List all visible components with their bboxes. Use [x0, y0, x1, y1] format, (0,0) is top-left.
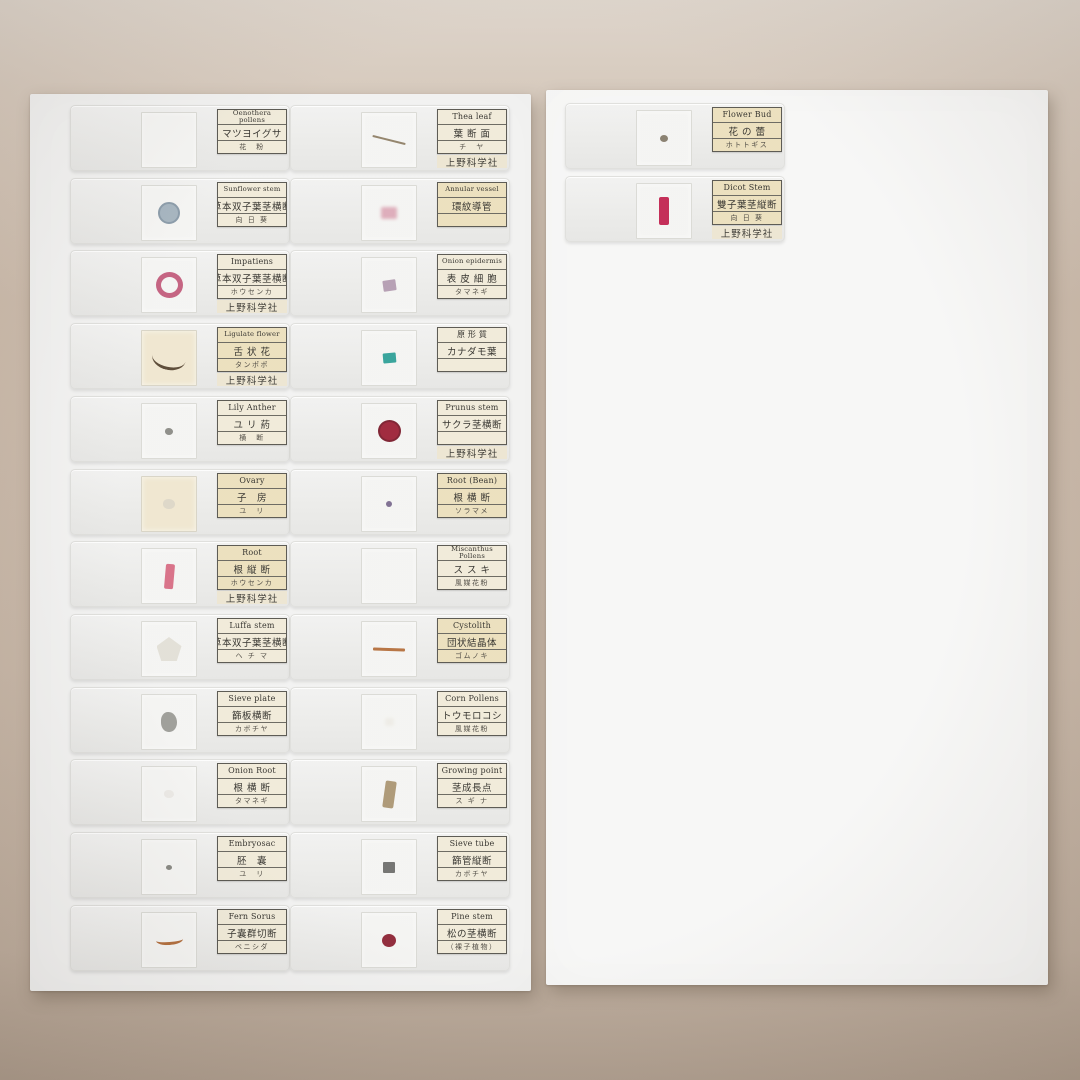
microscope-slide-sieve-plate: Sieve plate篩板横断カボチヤ	[70, 687, 290, 753]
label-japanese: 草本双子葉茎横断	[218, 634, 286, 650]
label-japanese: サクラ茎横断	[438, 416, 506, 432]
specimen-smudge	[381, 207, 397, 219]
label-title: Annular vessel	[438, 183, 506, 198]
microscope-slide-prunus-stem: Prunus stemサクラ茎横断上野科学社	[290, 396, 510, 462]
microscope-slide-ovary: Ovary子 房ユ リ	[70, 469, 290, 535]
label-japanese: 篩管縦断	[438, 852, 506, 868]
label-kana: 風媒花粉	[438, 723, 506, 735]
specimen-dot	[660, 135, 668, 142]
cover-glass	[141, 403, 197, 459]
label-japanese: カナダモ葉	[438, 343, 506, 359]
cover-glass	[141, 621, 197, 677]
cover-glass	[361, 766, 417, 822]
microscope-slide-oenothera-pollens: Oenothera pollensマツヨイグサ花 粉	[70, 105, 290, 171]
label-japanese: 篩板横断	[218, 707, 286, 723]
microscope-slide-flower-bud: Flower Bud花 の 蕾ホトトギス	[565, 103, 785, 169]
label-japanese: 葉 断 面	[438, 125, 506, 141]
slide-label: Luffa stem草本双子葉茎横断ヘ チ マ	[217, 618, 287, 663]
photo-scene: Oenothera pollensマツヨイグサ花 粉Sunflower stem…	[0, 0, 1080, 1080]
label-title: Root	[218, 546, 286, 561]
label-kana: カボチヤ	[218, 723, 286, 735]
label-kana: タマネギ	[438, 286, 506, 298]
label-title: Sieve tube	[438, 837, 506, 852]
maker-label: 上野科学社	[217, 300, 287, 313]
label-japanese: 松の茎横断	[438, 925, 506, 941]
label-title: Prunus stem	[438, 401, 506, 416]
label-japanese: 子嚢群切断	[218, 925, 286, 941]
maker-label: 上野科学社	[437, 155, 507, 168]
cover-glass	[141, 694, 197, 750]
label-japanese: 表 皮 細 胞	[438, 270, 506, 286]
label-title: Ligulate flower	[218, 328, 286, 343]
slide-label: Annular vessel環紋導管	[437, 182, 507, 227]
label-japanese: 草本双子葉茎横断	[218, 198, 286, 214]
label-title: Fern Sorus	[218, 910, 286, 925]
cover-glass	[141, 257, 197, 313]
specimen-blob	[165, 428, 173, 435]
slide-label: Dicot Stem雙子葉茎縦断向 日 葵	[712, 180, 782, 225]
microscope-slide-lily-anther: Lily Antherユ リ 葯横 断	[70, 396, 290, 462]
label-kana: カボチヤ	[438, 868, 506, 880]
specimen-blob	[164, 790, 174, 798]
slide-label: Onion Root根 横 断タマネギ	[217, 763, 287, 808]
label-kana: ヘ チ マ	[218, 650, 286, 662]
label-kana	[438, 214, 506, 226]
label-title: Ovary	[218, 474, 286, 489]
label-japanese: 胚 嚢	[218, 852, 286, 868]
slide-label: Sieve plate篩板横断カボチヤ	[217, 691, 287, 736]
label-japanese: 子 房	[218, 489, 286, 505]
cover-glass	[361, 694, 417, 750]
cover-glass	[361, 476, 417, 532]
slide-label: Ovary子 房ユ リ	[217, 473, 287, 518]
maker-label: 上野科学社	[217, 373, 287, 386]
label-kana: ホウセンカ	[218, 577, 286, 589]
label-kana: 風媒花粉	[438, 577, 506, 589]
specimen-blob	[163, 499, 175, 509]
slide-label: Oenothera pollensマツヨイグサ花 粉	[217, 109, 287, 154]
slide-label: Flower Bud花 の 蕾ホトトギス	[712, 107, 782, 152]
label-kana: ソラマメ	[438, 505, 506, 517]
label-japanese: ス ス キ	[438, 561, 506, 577]
microscope-slide-dicot-stem: Dicot Stem雙子葉茎縦断向 日 葵上野科学社	[565, 176, 785, 242]
label-kana: ホトトギス	[713, 139, 781, 151]
cover-glass	[361, 185, 417, 241]
label-japanese: 茎成長点	[438, 779, 506, 795]
specimen-bar	[659, 197, 669, 225]
specimen-line	[372, 135, 405, 145]
cover-glass	[361, 839, 417, 895]
maker-label: 上野科学社	[437, 446, 507, 459]
specimen-dot	[166, 865, 172, 870]
microscope-slide-onion-root: Onion Root根 横 断タマネギ	[70, 759, 290, 825]
slide-label: Root (Bean)根 横 断ソラマメ	[437, 473, 507, 518]
label-japanese: マツヨイグサ	[218, 125, 286, 141]
label-kana: タンポポ	[218, 359, 286, 371]
specimen-dot	[382, 934, 396, 947]
cover-glass	[141, 839, 197, 895]
cover-glass	[141, 912, 197, 968]
label-kana	[438, 359, 506, 371]
label-title: Cystolith	[438, 619, 506, 634]
label-title: Onion epidermis	[438, 255, 506, 270]
slide-tray-right: Flower Bud花 の 蕾ホトトギスDicot Stem雙子葉茎縦断向 日 …	[546, 90, 1048, 985]
label-japanese: 花 の 蕾	[713, 123, 781, 139]
specimen-bar	[382, 780, 397, 808]
label-kana: ゴムノキ	[438, 650, 506, 662]
label-title: Dicot Stem	[713, 181, 781, 196]
specimen-square	[383, 862, 395, 873]
cover-glass	[141, 330, 197, 386]
label-japanese: 根 縦 断	[218, 561, 286, 577]
slide-label: Miscanthus Pollensス ス キ風媒花粉	[437, 545, 507, 590]
cover-glass	[141, 548, 197, 604]
slide-label: Impatiens草本双子葉茎横断ホウセンカ	[217, 254, 287, 299]
specimen-circle	[158, 202, 180, 224]
slide-label: 原 形 質カナダモ葉	[437, 327, 507, 372]
label-title: Embryosac	[218, 837, 286, 852]
microscope-slide-thea-leaf: Thea leaf葉 断 面チ ヤ上野科学社	[290, 105, 510, 171]
label-kana: 横 断	[218, 432, 286, 444]
microscope-slide-growing-point: Growing point茎成長点ス ギ ナ	[290, 759, 510, 825]
label-kana: タマネギ	[218, 795, 286, 807]
specimen-pentagon	[157, 637, 182, 661]
cover-glass	[361, 257, 417, 313]
label-title: Luffa stem	[218, 619, 286, 634]
slide-label: Cystolith団状結晶体ゴムノキ	[437, 618, 507, 663]
cover-glass	[361, 403, 417, 459]
label-kana	[438, 432, 506, 444]
specimen-arc	[150, 343, 188, 374]
label-title: Sunflower stem	[218, 183, 286, 198]
label-kana: ホウセンカ	[218, 286, 286, 298]
maker-label: 上野科学社	[217, 591, 287, 604]
slide-label: Pine stem松の茎横断（裸子植物）	[437, 909, 507, 954]
specimen-arc	[155, 934, 183, 946]
label-japanese: トウモロコシ	[438, 707, 506, 723]
slide-label: Sunflower stem草本双子葉茎横断向 日 葵	[217, 182, 287, 227]
slide-label: Fern Sorus子嚢群切断ベニシダ	[217, 909, 287, 954]
label-japanese: 環紋導管	[438, 198, 506, 214]
specimen-smudge	[385, 718, 394, 726]
label-title: Corn Pollens	[438, 692, 506, 707]
label-kana: ベニシダ	[218, 941, 286, 953]
microscope-slide-miscanthus-pollens: Miscanthus Pollensス ス キ風媒花粉	[290, 541, 510, 607]
cover-glass	[141, 185, 197, 241]
slide-label: Sieve tube篩管縦断カボチヤ	[437, 836, 507, 881]
label-kana: ユ リ	[218, 868, 286, 880]
slide-label: Growing point茎成長点ス ギ ナ	[437, 763, 507, 808]
specimen-bar	[163, 563, 174, 589]
label-kana: （裸子植物）	[438, 941, 506, 953]
specimen-square	[382, 352, 396, 363]
microscope-slide-cystolith: Cystolith団状結晶体ゴムノキ	[290, 614, 510, 680]
label-title: Lily Anther	[218, 401, 286, 416]
specimen-square	[382, 279, 396, 292]
cover-glass	[361, 548, 417, 604]
cover-glass	[361, 912, 417, 968]
microscope-slide-impatiens: Impatiens草本双子葉茎横断ホウセンカ上野科学社	[70, 250, 290, 316]
slide-label: Onion epidermis表 皮 細 胞タマネギ	[437, 254, 507, 299]
microscope-slide-luffa-stem: Luffa stem草本双子葉茎横断ヘ チ マ	[70, 614, 290, 680]
cover-glass	[141, 476, 197, 532]
cover-glass	[636, 183, 692, 239]
specimen-ring	[156, 272, 183, 298]
cover-glass	[141, 112, 197, 168]
label-kana: 向 日 葵	[218, 214, 286, 226]
microscope-slide-fern-sorus: Fern Sorus子嚢群切断ベニシダ	[70, 905, 290, 971]
microscope-slide-: 原 形 質カナダモ葉	[290, 323, 510, 389]
label-kana: チ ヤ	[438, 141, 506, 153]
label-title: Miscanthus Pollens	[438, 546, 506, 561]
slide-label: Lily Antherユ リ 葯横 断	[217, 400, 287, 445]
label-kana: ユ リ	[218, 505, 286, 517]
specimen-line	[373, 647, 405, 651]
label-kana: 花 粉	[218, 141, 286, 153]
label-japanese: 草本双子葉茎横断	[218, 270, 286, 286]
cover-glass	[361, 112, 417, 168]
slide-label: Ligulate flower舌 状 花タンポポ	[217, 327, 287, 372]
cover-glass	[361, 621, 417, 677]
microscope-slide-pine-stem: Pine stem松の茎横断（裸子植物）	[290, 905, 510, 971]
slide-label: Root根 縦 断ホウセンカ	[217, 545, 287, 590]
label-title: Thea leaf	[438, 110, 506, 125]
microscope-slide-sieve-tube: Sieve tube篩管縦断カボチヤ	[290, 832, 510, 898]
maker-label: 上野科学社	[712, 226, 782, 239]
cover-glass	[141, 766, 197, 822]
label-title: Flower Bud	[713, 108, 781, 123]
label-title: Root (Bean)	[438, 474, 506, 489]
label-japanese: 根 横 断	[438, 489, 506, 505]
slide-label: Prunus stemサクラ茎横断	[437, 400, 507, 445]
label-kana: 向 日 葵	[713, 212, 781, 224]
microscope-slide-annular-vessel: Annular vessel環紋導管	[290, 178, 510, 244]
label-title: Impatiens	[218, 255, 286, 270]
microscope-slide-embryosac: Embryosac胚 嚢ユ リ	[70, 832, 290, 898]
label-japanese: ユ リ 葯	[218, 416, 286, 432]
slide-label: Thea leaf葉 断 面チ ヤ	[437, 109, 507, 154]
label-kana: ス ギ ナ	[438, 795, 506, 807]
microscope-slide-root: Root根 縦 断ホウセンカ上野科学社	[70, 541, 290, 607]
label-japanese: 団状結晶体	[438, 634, 506, 650]
specimen-circle	[378, 420, 401, 442]
specimen-dot	[386, 501, 392, 507]
cover-glass	[361, 330, 417, 386]
slide-label: Corn Pollensトウモロコシ風媒花粉	[437, 691, 507, 736]
slide-label: Embryosac胚 嚢ユ リ	[217, 836, 287, 881]
label-title: Pine stem	[438, 910, 506, 925]
microscope-slide-corn-pollens: Corn Pollensトウモロコシ風媒花粉	[290, 687, 510, 753]
label-title: 原 形 質	[438, 328, 506, 343]
label-title: Oenothera pollens	[218, 110, 286, 125]
label-japanese: 舌 状 花	[218, 343, 286, 359]
microscope-slide-sunflower-stem: Sunflower stem草本双子葉茎横断向 日 葵	[70, 178, 290, 244]
label-japanese: 根 横 断	[218, 779, 286, 795]
microscope-slide-root-bean: Root (Bean)根 横 断ソラマメ	[290, 469, 510, 535]
label-title: Sieve plate	[218, 692, 286, 707]
label-title: Onion Root	[218, 764, 286, 779]
slide-tray-left: Oenothera pollensマツヨイグサ花 粉Sunflower stem…	[30, 94, 531, 991]
specimen-blob	[161, 712, 177, 732]
cover-glass	[636, 110, 692, 166]
label-title: Growing point	[438, 764, 506, 779]
label-japanese: 雙子葉茎縦断	[713, 196, 781, 212]
microscope-slide-ligulate-flower: Ligulate flower舌 状 花タンポポ上野科学社	[70, 323, 290, 389]
microscope-slide-onion-epidermis: Onion epidermis表 皮 細 胞タマネギ	[290, 250, 510, 316]
